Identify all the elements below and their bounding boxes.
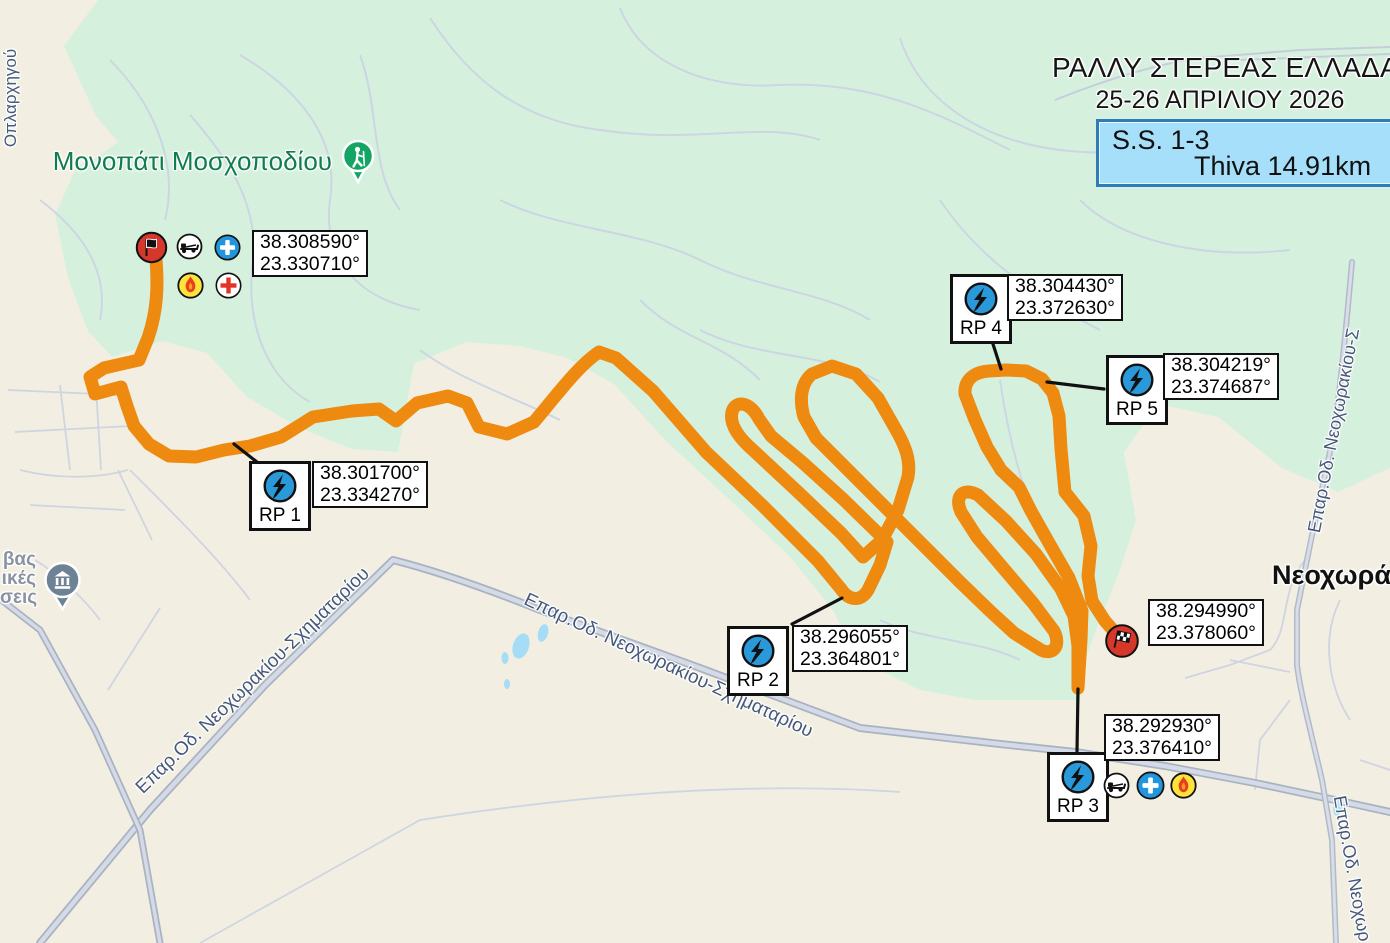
tow-truck-icon — [176, 233, 203, 260]
radio-icon — [262, 468, 298, 504]
red-cross-icon — [215, 272, 242, 299]
rp2-lat: 38.296055° — [800, 627, 900, 649]
rp1-lon: 23.334270° — [320, 485, 420, 507]
fire-icon — [177, 272, 204, 299]
rp5-coords: 38.304219° 23.374687° — [1163, 353, 1279, 400]
rp3-lon: 23.376410° — [1112, 738, 1212, 760]
finish-coords: 38.294990° 23.378060° — [1148, 599, 1264, 646]
fire-icon — [1170, 772, 1197, 799]
town-label-line2: ικές — [0, 569, 36, 588]
street-label-vertical: Οπλαρχηγού — [1, 23, 21, 173]
radio-icon — [1119, 362, 1155, 398]
hiking-trail-pin — [339, 139, 377, 185]
medical-cross-icon — [214, 234, 241, 261]
leader-rp3 — [1077, 689, 1078, 751]
rp-label: RP 5 — [1116, 399, 1158, 421]
rally-map: ΡΑΛΛΥ ΣΤΕΡΕΑΣ ΕΛΛΑΔΑΣ 25-26 ΑΠΡΙΛΙΟΥ 202… — [0, 0, 1390, 943]
radio-icon — [740, 633, 776, 669]
radio-icon — [963, 281, 999, 317]
start-coords: 38.308590° 23.330710° — [252, 230, 368, 277]
rp-label: RP 4 — [960, 318, 1002, 340]
rp4-lat: 38.304430° — [1015, 276, 1115, 298]
stage-distance: Thiva 14.91km — [1194, 151, 1371, 182]
rp5-box: RP 5 — [1106, 355, 1168, 425]
stage-info-box: S.S. 1-3 Thiva 14.91km — [1096, 119, 1390, 187]
rp2-lon: 23.364801° — [800, 649, 900, 671]
tow-truck-icon — [1103, 772, 1130, 799]
rp4-box: RP 4 — [950, 274, 1012, 344]
rp5-lon: 23.374687° — [1171, 377, 1271, 399]
rp-label: RP 3 — [1057, 796, 1099, 818]
rp2-box: RP 2 — [727, 626, 789, 696]
town-label-line1: βας — [0, 550, 36, 569]
town-label-line3: σεις — [0, 588, 36, 607]
rp1-box: RP 1 — [249, 461, 311, 531]
start-lat: 38.308590° — [260, 232, 360, 254]
rp-label: RP 1 — [259, 505, 301, 527]
start-lon: 23.330710° — [260, 254, 360, 276]
rp3-box: RP 3 — [1047, 752, 1109, 822]
trail-label: Μονοπάτι Μοσχοποδίου — [53, 146, 332, 177]
rp1-lat: 38.301700° — [320, 463, 420, 485]
rp4-lon: 23.372630° — [1015, 298, 1115, 320]
finish-lat: 38.294990° — [1156, 601, 1256, 623]
radio-icon — [1060, 759, 1096, 795]
rp4-coords: 38.304430° 23.372630° — [1007, 274, 1123, 321]
finish-flag-icon — [1104, 623, 1140, 659]
rp3-coords: 38.292930° 23.376410° — [1104, 714, 1220, 761]
rp-label: RP 2 — [737, 670, 779, 692]
village-label: Νεοχωράκι — [1272, 560, 1390, 591]
start-flag-icon — [135, 231, 168, 264]
event-date: 25-26 ΑΠΡΙΛΙΟΥ 2026 — [1070, 86, 1370, 115]
rp2-coords: 38.296055° 23.364801° — [792, 625, 908, 672]
rp3-lat: 38.292930° — [1112, 716, 1212, 738]
medical-cross-icon — [1136, 771, 1165, 800]
finish-lon: 23.378060° — [1156, 623, 1256, 645]
town-label: βας ικές σεις — [0, 550, 36, 607]
museum-pin — [41, 559, 85, 613]
rp1-coords: 38.301700° 23.334270° — [312, 461, 428, 508]
rp5-lat: 38.304219° — [1171, 355, 1271, 377]
event-title: ΡΑΛΛΥ ΣΤΕΡΕΑΣ ΕΛΛΑΔΑΣ — [1052, 52, 1390, 84]
